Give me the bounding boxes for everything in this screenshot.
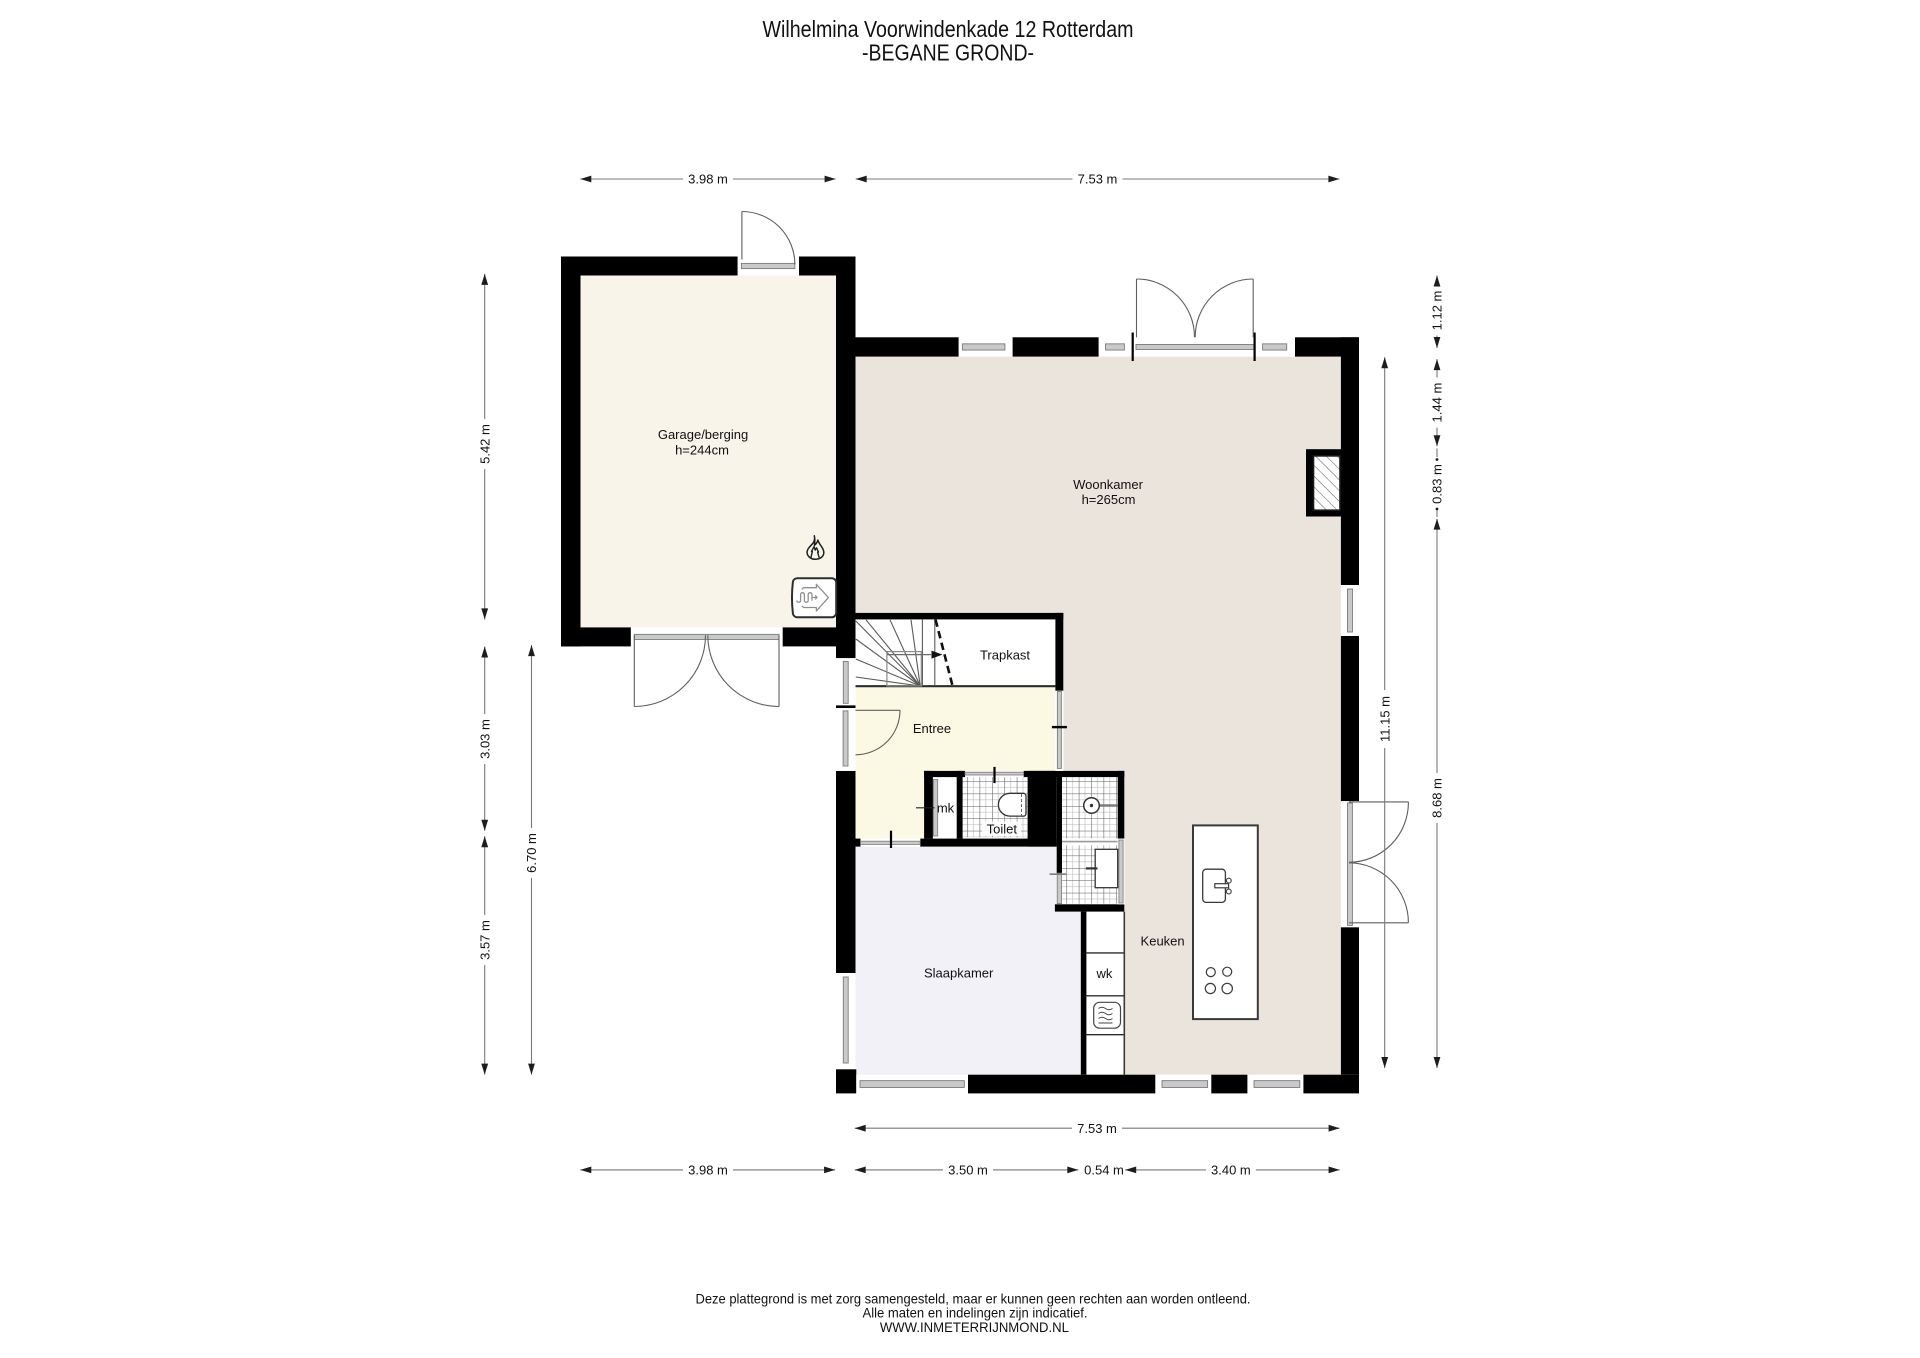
svg-text:3.98 m: 3.98 m <box>688 1163 728 1178</box>
svg-text:0.83 m: 0.83 m <box>1430 464 1445 504</box>
svg-text:-BEGANE GROND-: -BEGANE GROND- <box>862 40 1034 66</box>
svg-text:1.12 m: 1.12 m <box>1430 291 1445 331</box>
svg-text:3.57 m: 3.57 m <box>477 920 492 960</box>
svg-text:7.53 m: 7.53 m <box>1078 172 1118 187</box>
svg-text:Trapkast: Trapkast <box>980 648 1030 663</box>
svg-text:3.98 m: 3.98 m <box>688 172 728 187</box>
svg-text:8.68 m: 8.68 m <box>1430 778 1445 818</box>
svg-text:11.15 m: 11.15 m <box>1377 696 1392 742</box>
svg-text:7.53 m: 7.53 m <box>1077 1121 1117 1136</box>
svg-text:Garage/berging: Garage/berging <box>658 427 748 442</box>
svg-text:wk: wk <box>1096 966 1113 981</box>
svg-text:Wilhelmina Voorwindenkade 12 R: Wilhelmina Voorwindenkade 12 Rotterdam <box>763 16 1134 42</box>
svg-text:0.54 m: 0.54 m <box>1084 1163 1124 1178</box>
svg-text:Slaapkamer: Slaapkamer <box>924 966 994 981</box>
svg-text:3.40 m: 3.40 m <box>1211 1163 1251 1178</box>
svg-text:h=265cm: h=265cm <box>1082 492 1136 507</box>
svg-text:3.50 m: 3.50 m <box>948 1163 988 1178</box>
svg-text:h=244cm: h=244cm <box>675 443 729 458</box>
svg-text:Entree: Entree <box>913 721 951 736</box>
svg-text:Woonkamer: Woonkamer <box>1073 477 1144 492</box>
svg-text:5.42 m: 5.42 m <box>477 424 492 464</box>
svg-text:WWW.INMETERRIJNMOND.NL: WWW.INMETERRIJNMOND.NL <box>880 1319 1069 1335</box>
svg-text:mk: mk <box>937 801 955 816</box>
svg-text:3.03 m: 3.03 m <box>477 719 492 759</box>
svg-text:Toilet: Toilet <box>987 822 1018 837</box>
svg-text:Keuken: Keuken <box>1141 934 1185 949</box>
svg-text:1.44 m: 1.44 m <box>1430 383 1445 423</box>
svg-text:6.70 m: 6.70 m <box>524 833 539 873</box>
